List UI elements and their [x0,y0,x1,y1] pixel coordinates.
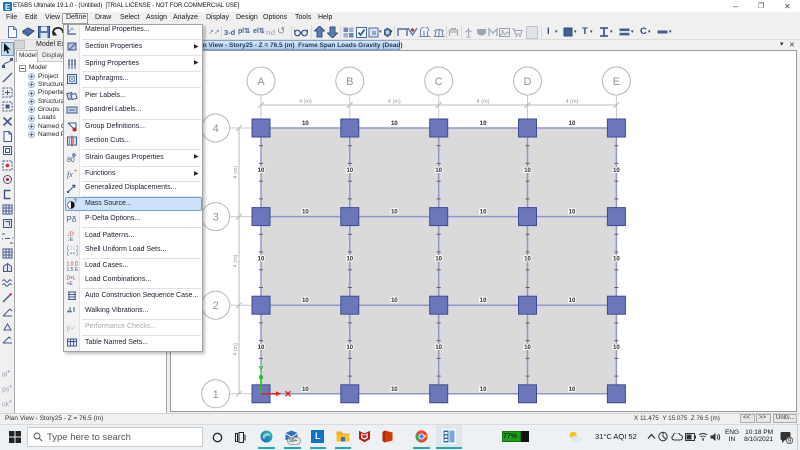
svg-text:10: 10 [480,210,487,216]
svg-text:(••): (••) [67,251,79,256]
svg-text:D: D [524,76,532,88]
svg-text:10: 10 [346,168,353,174]
svg-text:2: 2 [213,300,219,312]
svg-text:10: 10 [569,387,576,393]
svg-text:4 (m): 4 (m) [233,166,239,179]
svg-text:↓E: ↓E [67,237,74,242]
svg-text:Y: Y [258,365,264,374]
svg-text:10: 10 [435,256,442,262]
svg-text:10: 10 [480,121,487,127]
svg-text:10: 10 [613,168,620,174]
svg-text:10: 10 [569,210,576,216]
svg-text:Pδ: Pδ [67,215,77,224]
svg-text:10: 10 [391,210,398,216]
svg-text:10: 10 [346,256,353,262]
svg-text:10: 10 [258,345,265,351]
svg-text:10: 10 [391,387,398,393]
svg-text:B: B [346,76,353,88]
svg-text:10: 10 [258,168,265,174]
svg-text:+E: +E [67,281,74,286]
svg-text:10: 10 [524,345,531,351]
svg-text:4 (m): 4 (m) [566,99,579,105]
svg-text:fx: fx [67,170,73,179]
svg-text:10: 10 [391,298,398,304]
svg-text:p✓: p✓ [67,325,77,332]
svg-text:4 (m): 4 (m) [233,254,239,267]
svg-text:4 (m): 4 (m) [388,99,401,105]
svg-text:10: 10 [302,121,309,127]
svg-text:A: A [257,76,265,88]
svg-text:4 (m): 4 (m) [233,343,239,356]
svg-text:10: 10 [391,121,398,127]
svg-text:10: 10 [302,210,309,216]
svg-text:10: 10 [524,168,531,174]
svg-text:10: 10 [302,387,309,393]
svg-text:10: 10 [480,298,487,304]
svg-text:10: 10 [258,256,265,262]
svg-text:10: 10 [569,121,576,127]
svg-text:10: 10 [613,345,620,351]
svg-text:E: E [613,76,620,88]
svg-text:C: C [435,76,443,88]
svg-text:4: 4 [213,123,219,135]
svg-text:?: ? [74,199,78,205]
svg-text:80: 80 [67,157,75,164]
svg-text:10: 10 [569,298,576,304]
svg-text:4 (m): 4 (m) [299,99,312,105]
svg-text:1.5 E: 1.5 E [67,267,79,272]
svg-text:10: 10 [480,387,487,393]
svg-text:10: 10 [302,298,309,304]
svg-text:3: 3 [213,212,219,224]
svg-text:10: 10 [613,256,620,262]
svg-text:10: 10 [524,256,531,262]
svg-text:1: 1 [213,389,219,401]
svg-text:10: 10 [435,345,442,351]
svg-text:10: 10 [346,345,353,351]
svg-text:10: 10 [435,168,442,174]
svg-text:4 (m): 4 (m) [477,99,490,105]
